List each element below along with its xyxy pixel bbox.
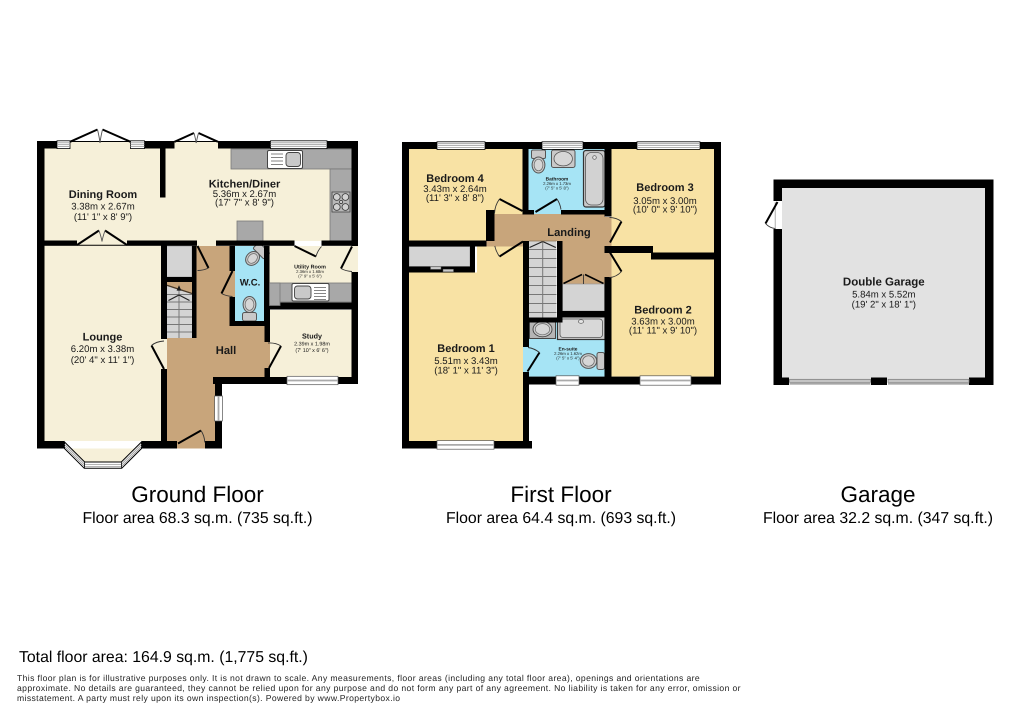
svg-text:Bedroom 2: Bedroom 2 [634, 305, 691, 317]
svg-text:Ground Floor: Ground Floor [131, 482, 264, 507]
svg-text:(11' 11" x 9' 10"): (11' 11" x 9' 10") [629, 326, 697, 337]
svg-text:(19' 2" x 18' 1"): (19' 2" x 18' 1") [852, 300, 916, 311]
svg-text:Total floor area: 164.9 sq.m.: Total floor area: 164.9 sq.m. (1,775 sq.… [19, 649, 308, 666]
svg-text:Landing: Landing [547, 227, 591, 239]
svg-text:misstatement. A party must rel: misstatement. A party must rely upon its… [17, 693, 400, 703]
svg-text:(17' 7" x 8' 9"): (17' 7" x 8' 9") [215, 198, 274, 209]
svg-text:(18' 1" x 11' 3"): (18' 1" x 11' 3") [434, 366, 498, 377]
svg-text:First Floor: First Floor [510, 482, 612, 507]
svg-text:2.39m x 1.98m: 2.39m x 1.98m [294, 342, 330, 348]
svg-text:3.38m x 2.67m: 3.38m x 2.67m [71, 202, 134, 213]
svg-text:(11' 1" x 8' 9"): (11' 1" x 8' 9") [74, 212, 132, 223]
svg-text:approximate. No details are gu: approximate. No details are guaranteed, … [17, 683, 741, 693]
svg-text:Bedroom 1: Bedroom 1 [437, 343, 494, 355]
svg-text:(10' 0" x 9' 10"): (10' 0" x 9' 10") [633, 205, 697, 216]
svg-text:(7' 10" x 6' 6"): (7' 10" x 6' 6") [295, 348, 328, 354]
svg-text:Floor area 64.4 sq.m. (693 sq.: Floor area 64.4 sq.m. (693 sq.ft.) [446, 510, 676, 527]
svg-text:Bedroom 3: Bedroom 3 [636, 182, 693, 194]
svg-text:(20' 4" x 11' 1"): (20' 4" x 11' 1") [71, 355, 135, 366]
svg-text:(7' 9" x 5' 6"): (7' 9" x 5' 6") [298, 274, 322, 279]
svg-text:Floor area 68.3 sq.m. (735 sq.: Floor area 68.3 sq.m. (735 sq.ft.) [82, 510, 312, 527]
svg-text:Floor area 32.2 sq.m. (347 sq.: Floor area 32.2 sq.m. (347 sq.ft.) [763, 510, 993, 527]
svg-text:(7' 5" x 5' 4"): (7' 5" x 5' 4") [556, 355, 580, 360]
svg-text:Garage: Garage [840, 482, 915, 507]
svg-text:Lounge: Lounge [83, 332, 123, 344]
svg-text:W.C.: W.C. [240, 278, 261, 289]
svg-text:Dining Room: Dining Room [69, 189, 138, 201]
svg-text:This floor plan is for illustr: This floor plan is for illustrative purp… [17, 673, 700, 683]
svg-text:6.20m x 3.38m: 6.20m x 3.38m [71, 344, 134, 355]
svg-text:Study: Study [302, 332, 322, 341]
svg-text:(11' 3" x 8' 8"): (11' 3" x 8' 8") [426, 193, 484, 204]
svg-text:Hall: Hall [216, 345, 237, 357]
svg-text:Double Garage: Double Garage [843, 277, 925, 289]
svg-text:(7' 5" x 5' 8"): (7' 5" x 5' 8") [545, 185, 569, 190]
